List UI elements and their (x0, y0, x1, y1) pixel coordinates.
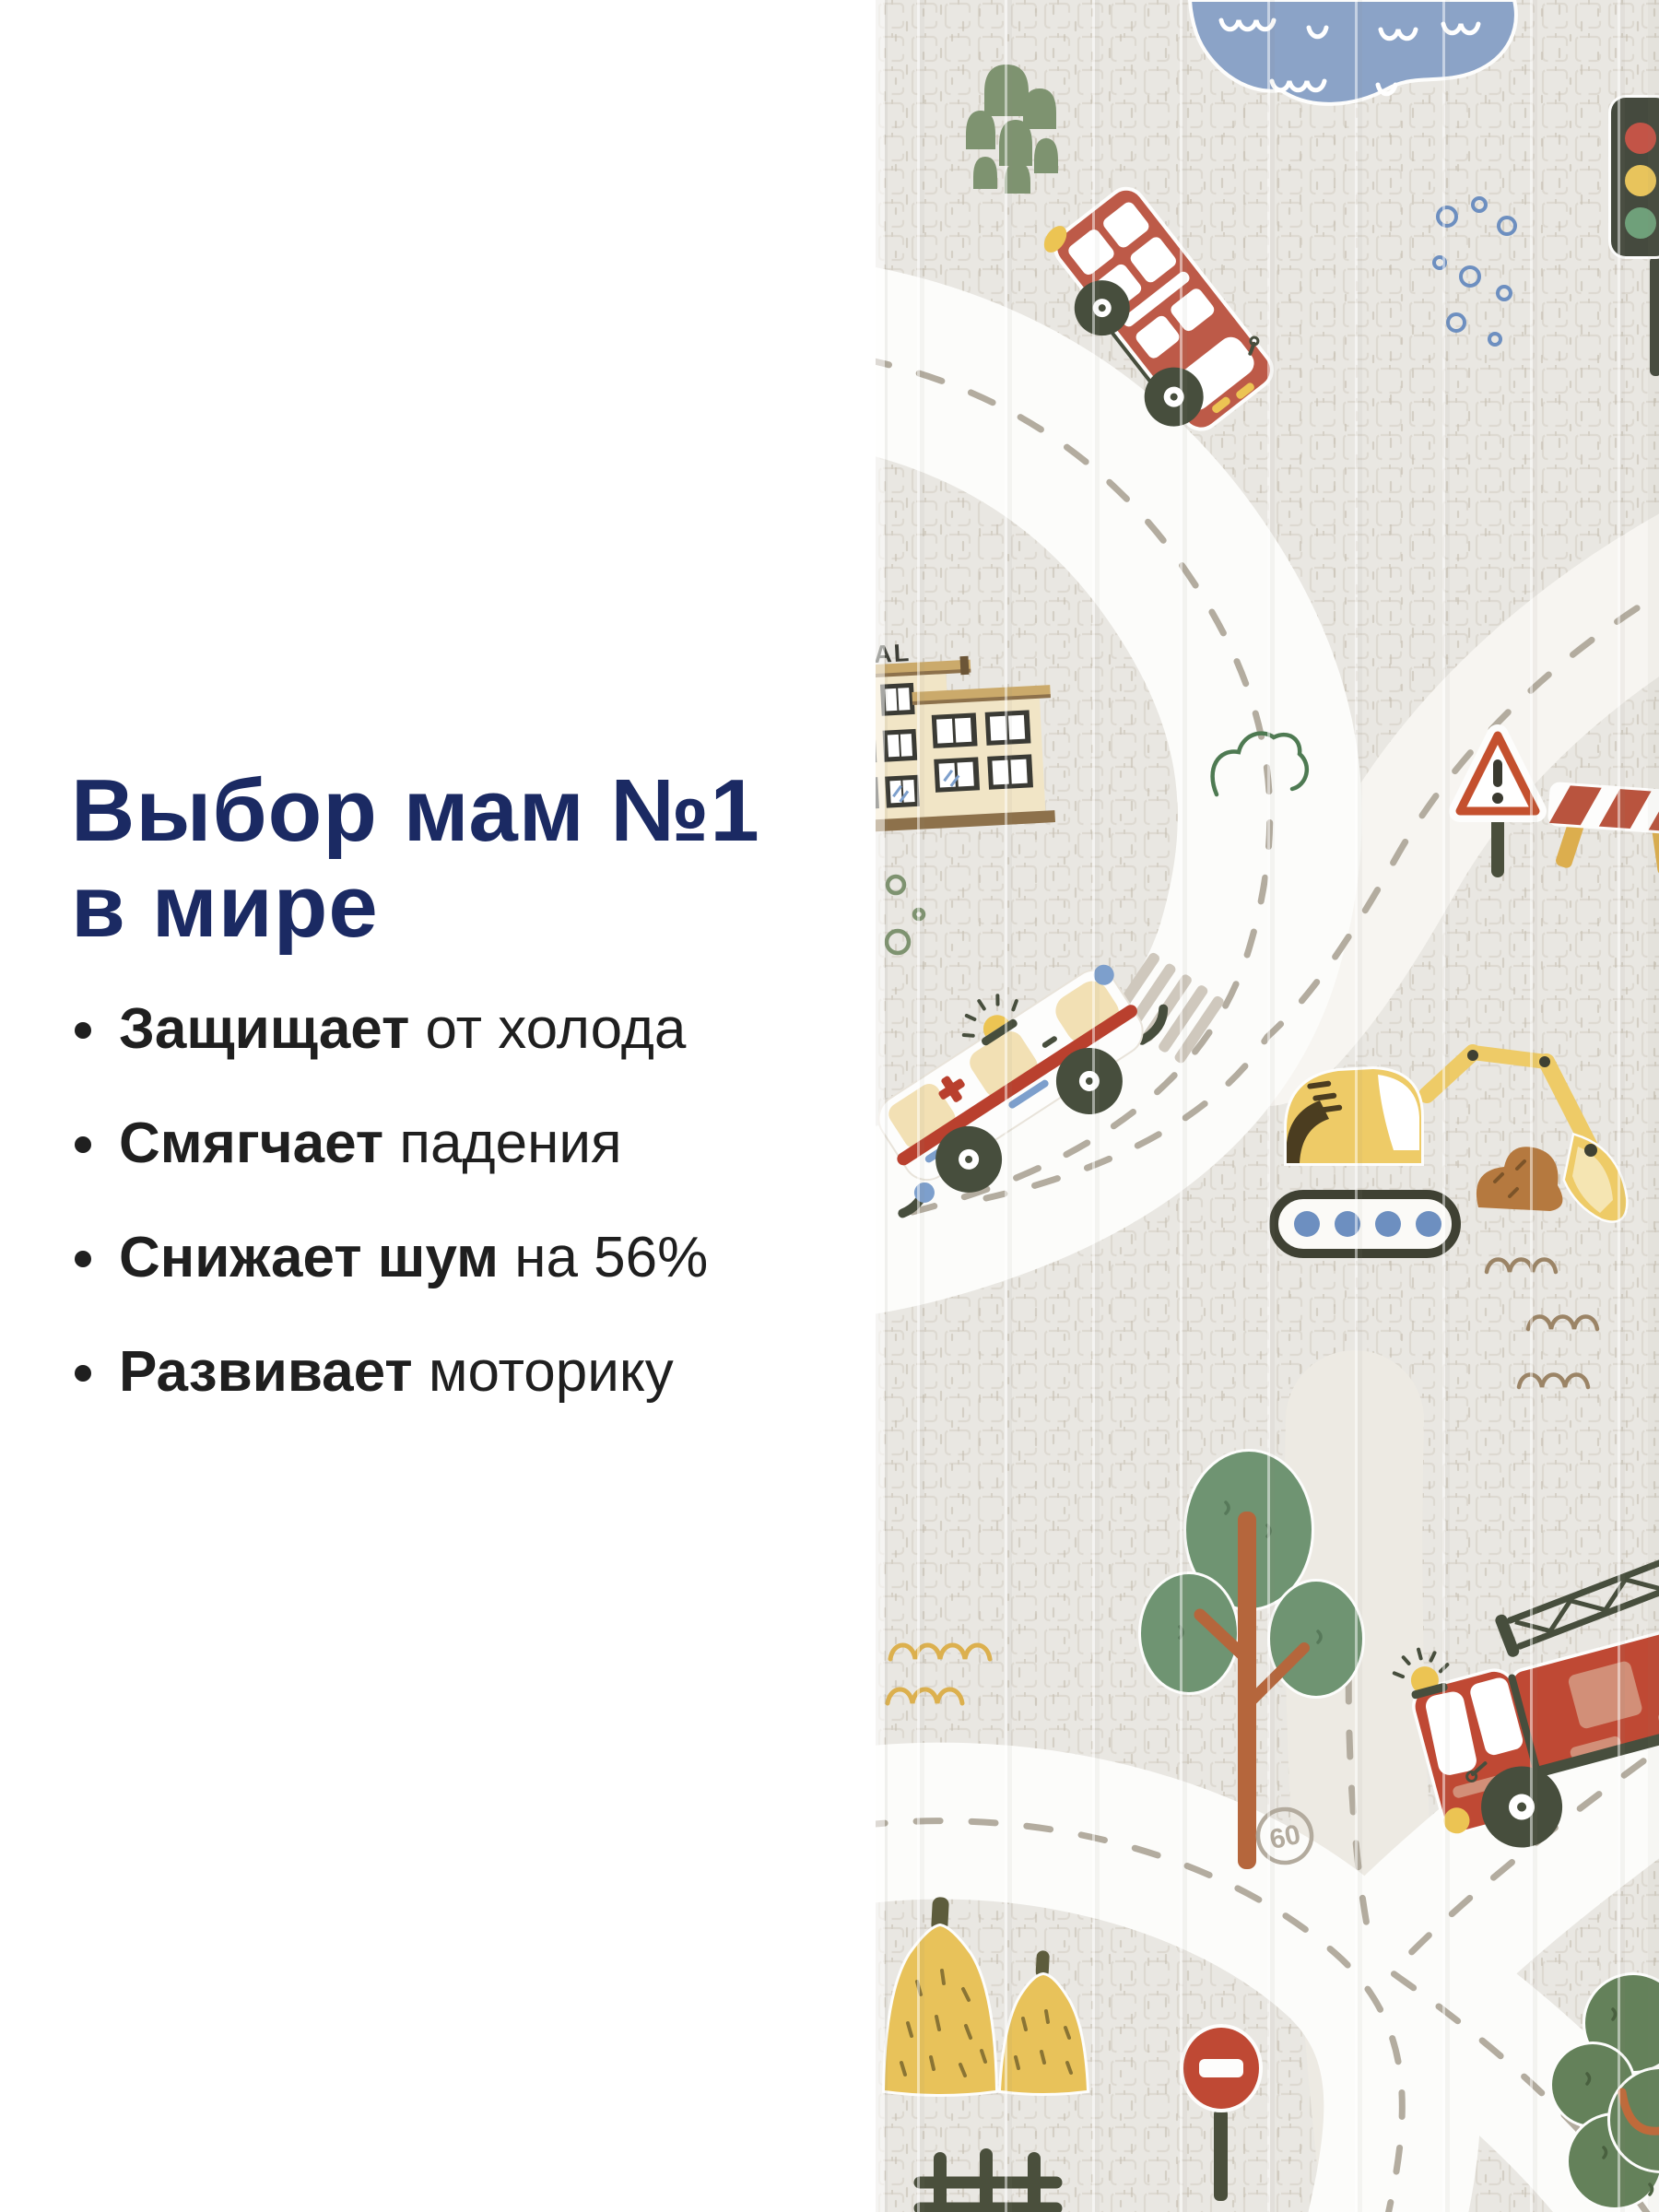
list-item: Смягчает падения (71, 1111, 864, 1177)
bullet-dot-icon (75, 1251, 91, 1267)
list-item: Развивает моторику (71, 1339, 864, 1406)
benefit-bold: Снижает шум (119, 1226, 499, 1289)
benefit-rest: на 56% (499, 1226, 708, 1289)
bullet-dot-icon (75, 1022, 91, 1039)
benefit-rest: от холода (409, 997, 686, 1061)
benefit-bold: Развивает (119, 1340, 413, 1404)
mat-left-edge (876, 0, 885, 2212)
bullet-dot-icon (75, 1365, 91, 1382)
headline-line2: в мире (71, 859, 864, 955)
text-panel: Выбор мам №1 в мире (71, 763, 864, 955)
benefit-rest: моторику (413, 1340, 674, 1404)
bullet-dot-icon (75, 1136, 91, 1153)
list-item: Защищает от холода (71, 996, 864, 1063)
benefits-list: Защищает от холода Смягчает падения Сниж… (71, 996, 864, 1453)
benefit-bold: Защищает (119, 997, 409, 1061)
page-title: Выбор мам №1 в мире (71, 763, 864, 955)
play-mat-illustration: AL (876, 0, 1659, 2212)
fence-icon (920, 2155, 1056, 2212)
list-item: Снижает шум на 56% (71, 1225, 864, 1291)
headline-line1: Выбор мам №1 (71, 763, 864, 859)
benefit-bold: Смягчает (119, 1112, 383, 1175)
mat-right-edge (1648, 0, 1659, 2212)
benefit-rest: падения (383, 1112, 621, 1175)
